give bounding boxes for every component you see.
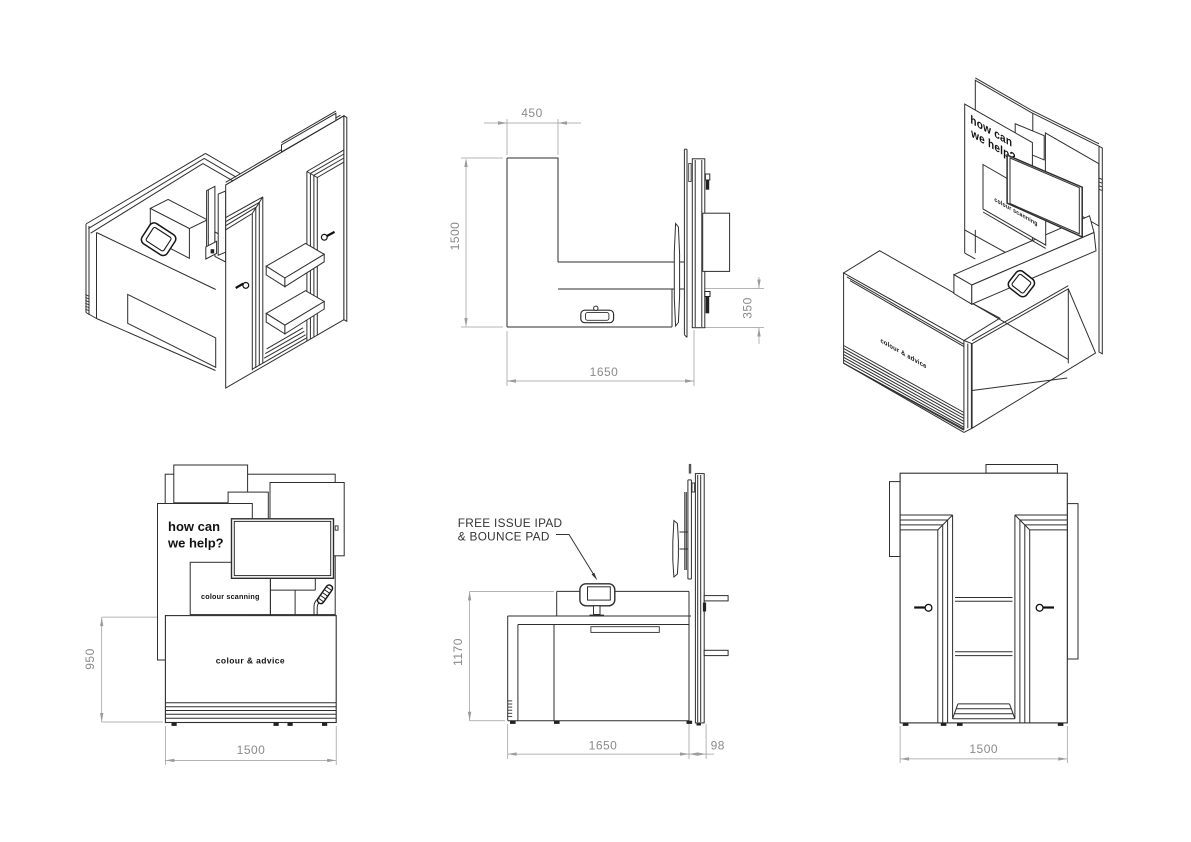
svg-text:1500: 1500 — [237, 743, 266, 757]
svg-text:450: 450 — [521, 106, 543, 120]
svg-text:& BOUNCE PAD: & BOUNCE PAD — [458, 530, 550, 544]
svg-text:1650: 1650 — [590, 365, 619, 379]
svg-text:1500: 1500 — [969, 742, 998, 756]
svg-text:1500: 1500 — [448, 222, 462, 251]
svg-text:350: 350 — [741, 297, 755, 319]
svg-text:FREE ISSUE IPAD: FREE ISSUE IPAD — [458, 516, 563, 530]
svg-text:1170: 1170 — [451, 638, 465, 666]
svg-text:we help?: we help? — [167, 536, 224, 551]
svg-text:1650: 1650 — [589, 739, 618, 753]
svg-text:colour & advice: colour & advice — [216, 656, 285, 666]
svg-text:how can: how can — [168, 519, 220, 534]
svg-text:colour scanning: colour scanning — [201, 592, 260, 601]
svg-text:98: 98 — [711, 739, 725, 753]
svg-text:950: 950 — [83, 648, 97, 670]
